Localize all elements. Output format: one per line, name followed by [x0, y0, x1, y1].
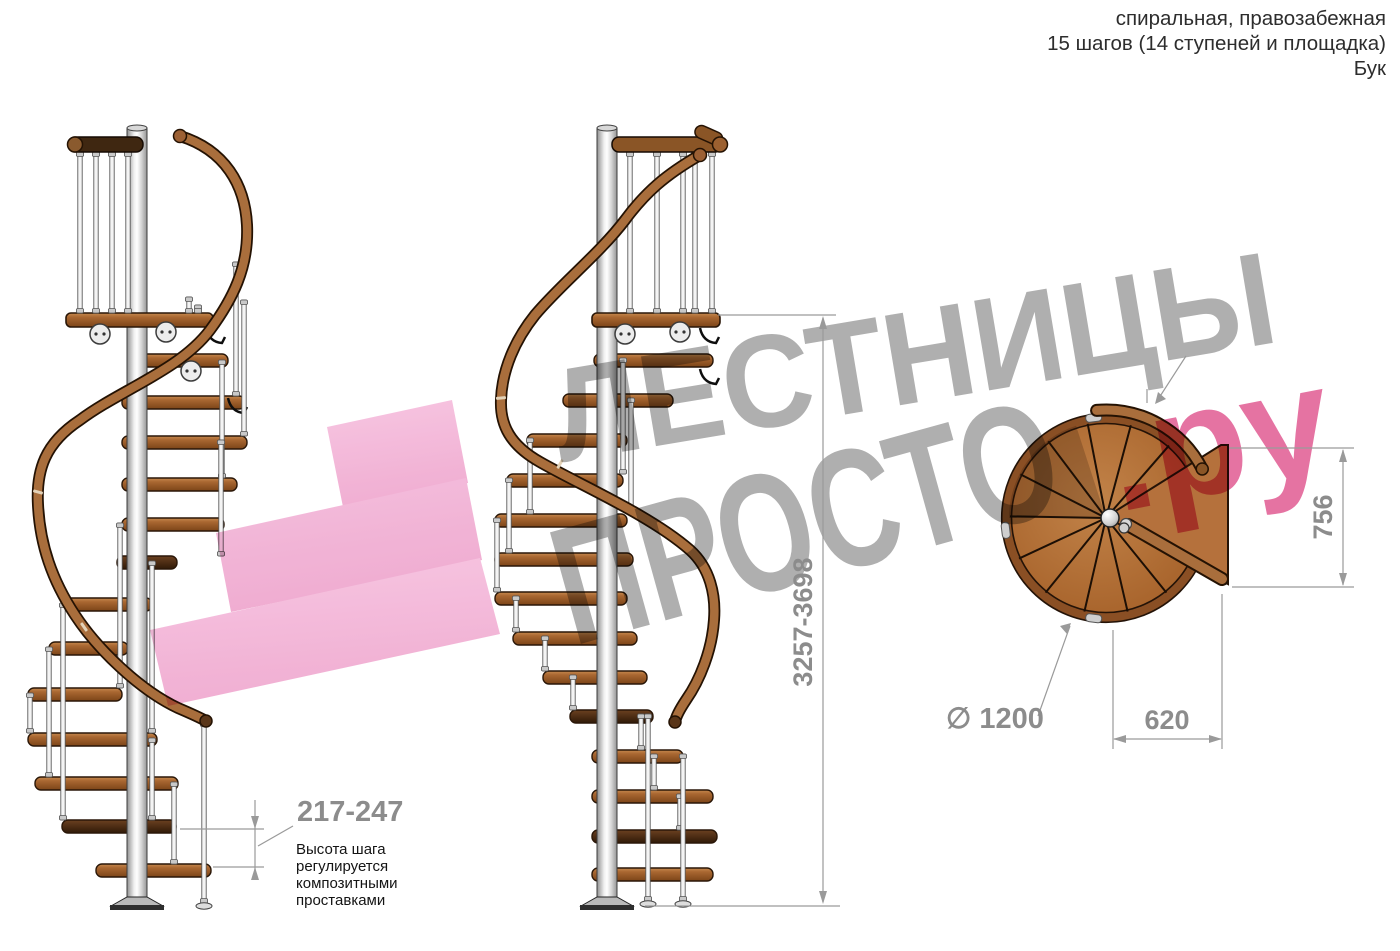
rail-end-cap — [68, 137, 83, 152]
baluster-rod — [47, 647, 51, 777]
baluster-rod — [639, 714, 643, 750]
baluster-rod — [172, 782, 176, 864]
baluster-rod — [543, 636, 547, 671]
pole-top-cap — [597, 125, 617, 131]
connector-plate — [181, 361, 201, 381]
baluster-rod — [28, 693, 32, 733]
handrail-start-cap — [694, 149, 707, 162]
left-staircase-side-view — [26, 125, 247, 910]
stair-step — [35, 777, 178, 790]
baluster-rod — [514, 596, 518, 632]
baluster-rod — [652, 754, 656, 790]
pole-base-flange — [581, 897, 633, 906]
baluster-rod — [507, 478, 511, 553]
baluster-rod — [242, 300, 246, 436]
plan-rim-connector — [1085, 613, 1102, 623]
baluster-rod — [681, 152, 685, 313]
baluster-rod — [693, 152, 697, 313]
baluster-rod — [110, 152, 114, 313]
plan-center-pole — [1101, 509, 1119, 527]
handrail-end-cap — [200, 715, 212, 727]
baluster-rod — [150, 561, 154, 733]
baluster-rod — [94, 152, 98, 313]
dim-total-height-label: 3257-3698 — [788, 557, 818, 686]
stair-step — [62, 820, 176, 833]
steps-count-label: 15 шагов (14 ступеней и площадка) — [1047, 31, 1386, 56]
baluster-rod — [628, 152, 632, 313]
annotation-line: Высота шага — [296, 841, 386, 858]
handrail-end-cap — [669, 716, 681, 728]
baluster-rod — [681, 754, 685, 901]
baluster-foot — [196, 903, 212, 909]
pole-base-plate — [580, 905, 634, 910]
baluster-rod — [150, 738, 154, 820]
baluster-rod — [78, 152, 82, 313]
baluster-rod — [126, 152, 130, 313]
pole-top-cap — [127, 125, 147, 131]
dim-landing-depth-label: 756 — [1308, 494, 1338, 539]
connector-plate — [156, 322, 176, 342]
watermark-text: ЛЕСТНИЦЫ ПРОСТО .ру — [532, 224, 1345, 681]
stair-step — [96, 864, 211, 877]
landing-platform — [66, 313, 213, 327]
annotation-line: композитными — [296, 875, 398, 892]
annotation-line: проставками — [296, 892, 385, 909]
baluster-rod — [710, 152, 714, 313]
dim-diameter-label: ∅ 1200 — [946, 703, 1044, 735]
step-height-annotation: Высота шага регулируется композитными пр… — [296, 841, 398, 909]
connector-plate — [90, 324, 110, 344]
stair-step — [28, 688, 122, 701]
baluster-rod — [646, 714, 650, 901]
stair-type-label: спиральная, правозабежная — [1047, 6, 1386, 31]
baluster-rod — [202, 722, 206, 903]
baluster-rod — [571, 675, 575, 710]
baluster-rod — [495, 518, 499, 592]
pole-base-plate — [110, 905, 164, 910]
drawing-sheet: ЛЕСТНИЦЫ ПРОСТО .ру — [0, 0, 1400, 951]
pole-base-flange — [111, 897, 163, 906]
dim-step-height-label: 217-247 — [297, 796, 403, 828]
handrail-start-cap — [174, 130, 187, 143]
staircase-technical-drawing: ЛЕСТНИЦЫ ПРОСТО .ру — [0, 0, 1400, 951]
baluster-rod — [61, 603, 65, 820]
dim-step-width-label: 620 — [1144, 705, 1189, 735]
title-block: спиральная, правозабежная 15 шагов (14 с… — [1047, 6, 1386, 81]
material-label: Бук — [1047, 56, 1386, 81]
annotation-line: регулируется — [296, 858, 388, 875]
